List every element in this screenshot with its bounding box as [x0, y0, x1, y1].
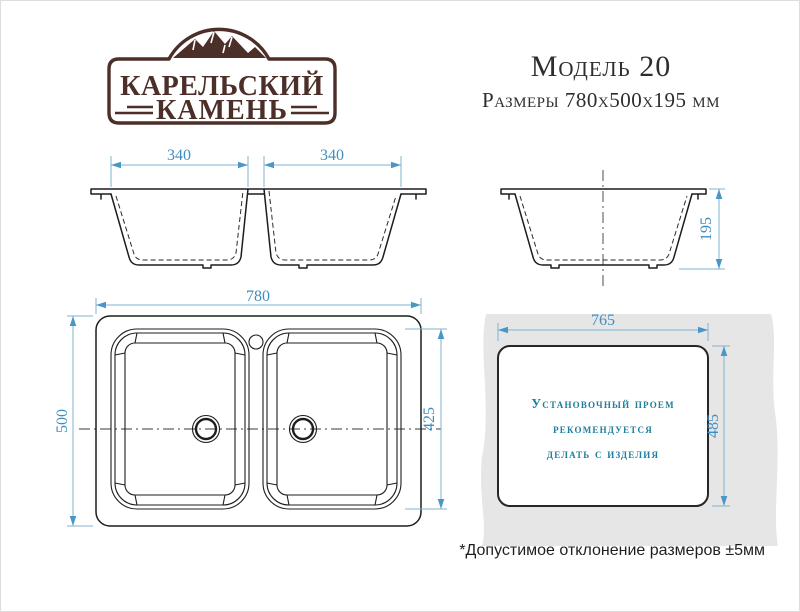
title-block: Модель 20 Размеры 780х500х195 мм: [446, 49, 756, 115]
tolerance-footnote: *Допустимое отклонение размеров ±5мм: [459, 542, 765, 560]
cutout-note-line3: делать с изделия: [547, 446, 659, 461]
size-caption: Размеры 780х500х195 мм: [446, 85, 756, 115]
dim-label-485: 485: [705, 414, 722, 438]
top-view-dimensions: 780 500 425: [54, 289, 447, 526]
front-view-drawing: 340 340: [71, 144, 443, 291]
dim-label-780: 780: [246, 289, 270, 305]
left-bowl: [111, 329, 249, 509]
dim-label-425: 425: [421, 407, 438, 431]
dim-label-340-right: 340: [320, 147, 344, 164]
front-view-dimensions: 340 340: [111, 147, 401, 187]
brand-logo: КАРЕЛЬСКИЙ КАМЕНЬ: [97, 21, 347, 133]
right-bowl: [263, 329, 401, 509]
cutout-diagram: 765 485 Установочный проем рекомендуется…: [456, 297, 800, 553]
cutout-note-line1: Установочный проем: [531, 396, 675, 411]
top-view-drawing: 780 500 425: [49, 289, 459, 541]
dim-label-765: 765: [591, 312, 615, 329]
dim-label-500: 500: [54, 409, 71, 433]
spec-sheet: КАРЕЛЬСКИЙ КАМЕНЬ Модель 20 Размеры 780х…: [0, 0, 800, 612]
sink-side-section: [501, 189, 706, 268]
cutout-note-line2: рекомендуется: [553, 421, 653, 436]
dim-label-340-left: 340: [167, 147, 191, 164]
sink-plan: [96, 316, 421, 526]
sink-cross-section: [91, 189, 426, 268]
dim-label-195: 195: [698, 217, 715, 241]
faucet-hole: [249, 335, 263, 349]
brand-name-line2: КАМЕНЬ: [156, 95, 288, 126]
model-title: Модель 20: [446, 49, 756, 85]
side-view-drawing: 195: [481, 144, 761, 296]
